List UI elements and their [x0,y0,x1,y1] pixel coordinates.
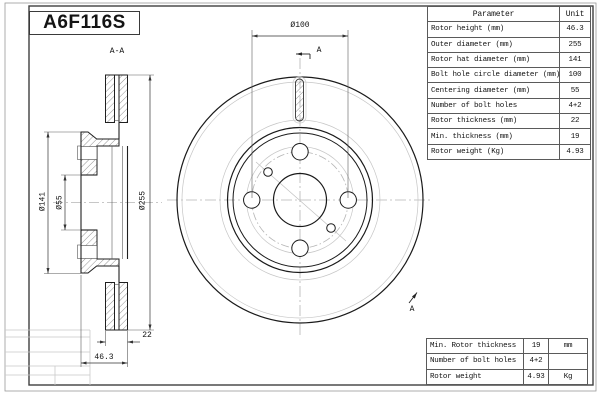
part-number: A6F116S [43,12,126,34]
param-name-cell: Number of bolt holes [428,98,560,113]
dim-label-hat-diameter: Ø141 [39,182,48,222]
vent-slot [296,79,304,121]
parameter-table-header: Parameter Unit [428,7,591,22]
param-unit-cell: Kg [549,369,588,384]
table-row: Rotor weight (Kg)4.93 [428,144,591,159]
param-value-cell: 46.3 [560,22,591,37]
param-value-cell: 22 [560,114,591,129]
param-unit-cell: mm [549,339,588,354]
param-value-cell: 55 [560,83,591,98]
summary-table: Min. Rotor thickness19mm Number of bolt … [426,338,588,385]
table-row: Rotor thickness (mm)22 [428,114,591,129]
dim-label-centering-diameter: Ø55 [56,187,65,219]
header-parameter: Parameter [428,7,560,22]
param-name-cell: Rotor weight [427,369,524,384]
table-row: Min. Rotor thickness19mm [427,339,588,354]
param-value-cell: 255 [560,37,591,52]
param-name-cell: Rotor height (mm) [428,22,560,37]
param-value-cell: 4+2 [524,354,549,369]
section-letter-top: A [314,46,324,55]
param-value-cell: 19 [560,129,591,144]
header-unit: Unit [560,7,591,22]
param-name-cell: Centering diameter (mm) [428,83,560,98]
param-value-cell: 4.93 [524,369,549,384]
dim-label-outer-diameter: Ø255 [139,181,148,221]
rotor-front-view [167,30,430,338]
section-marker-top [296,52,310,59]
param-unit-cell [549,354,588,369]
section-letter-bottom: A [407,305,417,314]
section-marker-bottom [409,293,417,304]
dim-label-bolt-circle: Ø100 [280,21,320,30]
table-row: Number of bolt holes4+2 [428,98,591,113]
param-name-cell: Min. thickness (mm) [428,129,560,144]
table-row: Outer diameter (mm)255 [428,37,591,52]
technical-drawing-page: A6F116S A-A Ø100 A A Ø141 Ø55 Ø255 22 46… [0,0,600,400]
dim-label-thickness: 22 [138,331,156,340]
param-name-cell: Rotor hat diameter (mm) [428,52,560,67]
param-name-cell: Min. Rotor thickness [427,339,524,354]
table-row: Rotor hat diameter (mm)141 [428,52,591,67]
section-dimension-lines [44,75,154,367]
table-row: Number of bolt holes4+2 [427,354,588,369]
title-block-faint [5,330,90,385]
table-row: Bolt hole circle diameter (mm)100 [428,68,591,83]
part-number-box: A6F116S [29,11,140,35]
param-name-cell: Rotor weight (Kg) [428,144,560,159]
param-name-cell: Bolt hole circle diameter (mm) [428,68,560,83]
table-row: Rotor height (mm)46.3 [428,22,591,37]
param-value-cell: 19 [524,339,549,354]
param-value-cell: 141 [560,52,591,67]
table-row: Centering diameter (mm)55 [428,83,591,98]
param-name-cell: Number of bolt holes [427,354,524,369]
param-name-cell: Rotor thickness (mm) [428,114,560,129]
dim-label-height: 46.3 [90,353,118,362]
param-value-cell: 100 [560,68,591,83]
table-row: Min. thickness (mm)19 [428,129,591,144]
param-name-cell: Outer diameter (mm) [428,37,560,52]
parameter-table: Parameter Unit Rotor height (mm)46.3 Out… [427,6,591,160]
table-row: Rotor weight4.93Kg [427,369,588,384]
param-value-cell: 4.93 [560,144,591,159]
section-view-label: A-A [100,47,134,56]
param-value-cell: 4+2 [560,98,591,113]
